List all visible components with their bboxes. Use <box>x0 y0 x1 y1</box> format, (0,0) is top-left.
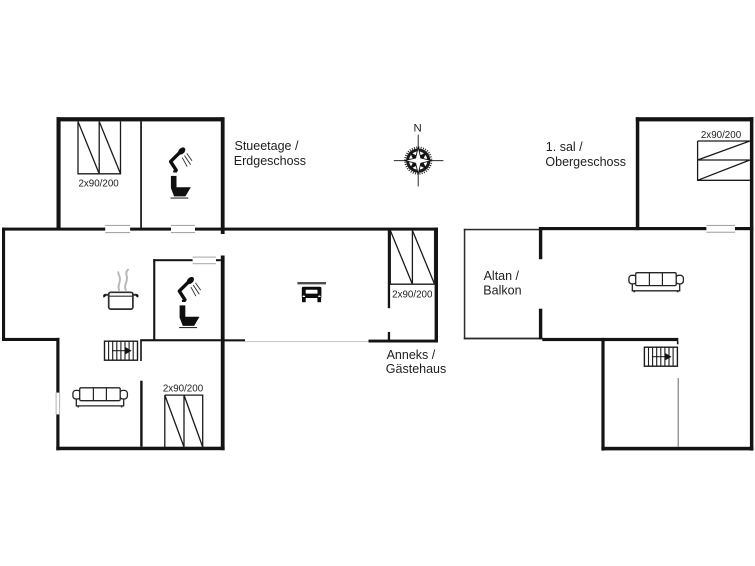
svg-text:Erdgeschoss: Erdgeschoss <box>234 154 306 168</box>
svg-text:Gästehaus: Gästehaus <box>386 362 446 376</box>
svg-text:2x90/200: 2x90/200 <box>163 383 204 394</box>
svg-text:Anneks /: Anneks / <box>387 348 436 362</box>
svg-text:Stueetage /: Stueetage / <box>235 139 299 153</box>
svg-text:N: N <box>413 122 421 134</box>
svg-text:Obergeschoss: Obergeschoss <box>545 155 626 169</box>
svg-text:2x90/200: 2x90/200 <box>392 290 433 301</box>
svg-text:Balkon: Balkon <box>483 284 521 298</box>
svg-text:2x90/200: 2x90/200 <box>701 130 742 141</box>
svg-text:1. sal /: 1. sal / <box>546 140 583 154</box>
svg-text:2x90/200: 2x90/200 <box>78 179 119 190</box>
svg-text:Altan /: Altan / <box>484 269 520 283</box>
